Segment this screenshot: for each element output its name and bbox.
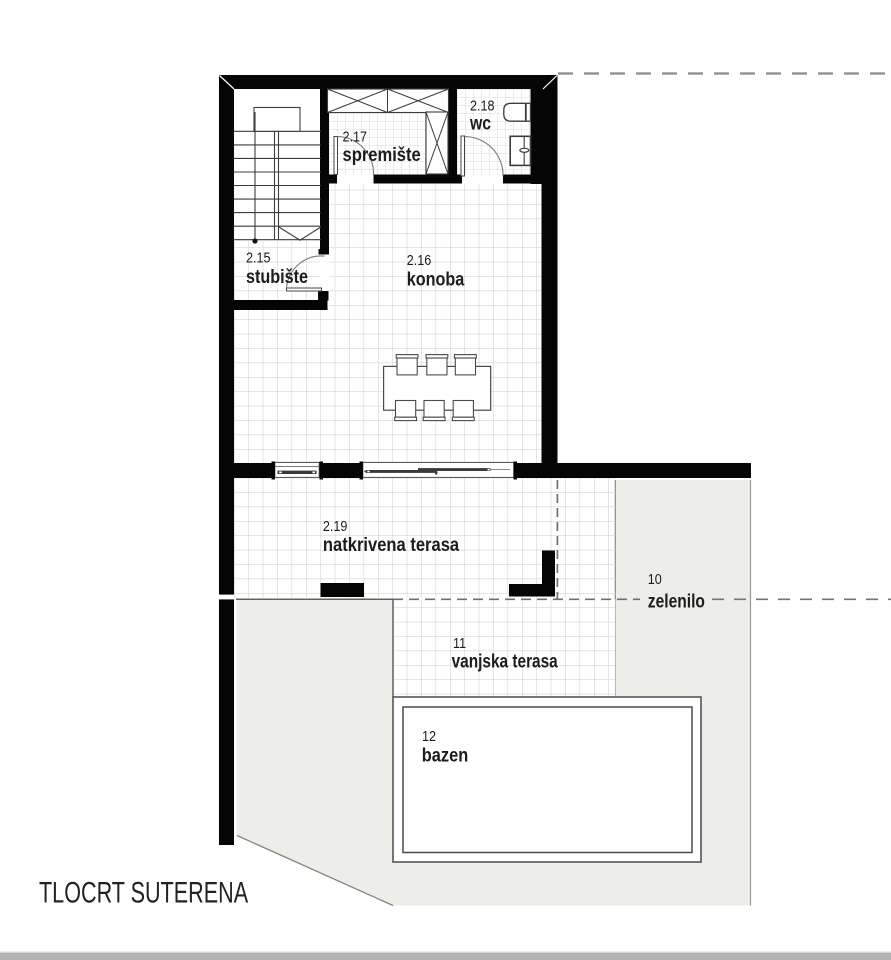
svg-text:11: 11 — [453, 634, 466, 651]
svg-text:wc: wc — [469, 112, 491, 134]
svg-text:bazen: bazen — [422, 744, 468, 766]
svg-text:natkrivena terasa: natkrivena terasa — [323, 534, 460, 556]
svg-text:2.16: 2.16 — [407, 251, 432, 268]
svg-text:TLOCRT SUTERENA: TLOCRT SUTERENA — [39, 875, 249, 909]
svg-text:2.17: 2.17 — [343, 127, 368, 144]
svg-text:10: 10 — [648, 570, 662, 587]
svg-text:12: 12 — [422, 727, 436, 744]
svg-text:stubište: stubište — [246, 266, 308, 288]
svg-text:2.19: 2.19 — [323, 517, 348, 534]
svg-text:2.15: 2.15 — [246, 248, 271, 265]
svg-text:spremište: spremište — [343, 144, 421, 166]
svg-text:zelenilo: zelenilo — [648, 590, 705, 612]
svg-text:vanjska terasa: vanjska terasa — [452, 650, 558, 672]
svg-text:konoba: konoba — [407, 268, 465, 290]
